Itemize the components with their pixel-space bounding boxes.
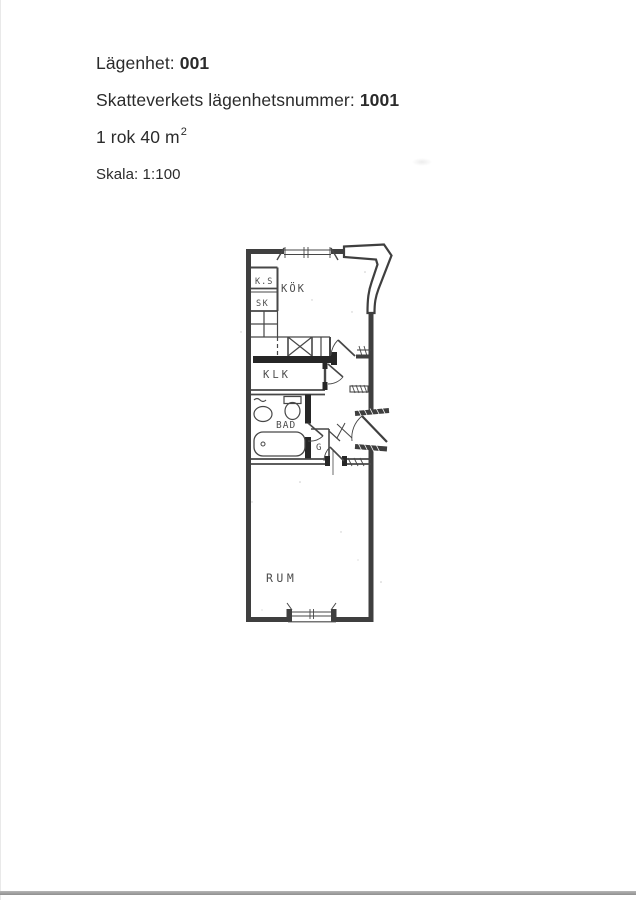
square-meter-superscript: 2 (181, 126, 187, 138)
room-size-text: 1 rok 40 m (96, 127, 180, 147)
entrance-door (337, 408, 389, 453)
tax-agency-number-value: 1001 (360, 90, 399, 110)
scale-line: Skala: 1:100 (96, 166, 181, 183)
kitchen-counter-left (251, 311, 278, 356)
floor-plan: K.S SK KÖK KLK BAD G RUM (236, 238, 400, 640)
room-label-rum: RUM (266, 571, 297, 585)
apartment-number-label: Lägenhet: (96, 53, 175, 73)
document-page: Lägenhet:001 Skatteverkets lägenhetsnumm… (0, 0, 636, 900)
window-top (277, 247, 338, 260)
window-bottom (287, 603, 337, 622)
kitchen-counter-stove (278, 337, 331, 356)
scan-bottom-edge (0, 891, 636, 895)
curved-wall-extension (344, 245, 392, 314)
tax-agency-number-label: Skatteverkets lägenhetsnummer: (96, 90, 355, 110)
klk-door (328, 364, 343, 384)
room-label-bad: BAD (276, 420, 296, 431)
scan-left-edge (0, 0, 1, 900)
room-label-ks: K.S (255, 277, 273, 287)
scale-text: Skala: 1:100 (96, 166, 181, 183)
sink (254, 399, 272, 422)
apartment-number-line: Lägenhet:001 (96, 53, 209, 74)
scan-smudge (412, 158, 432, 166)
bad-walls (305, 395, 311, 460)
room-label-g: G (316, 443, 321, 453)
room-label-kok: KÖK (281, 282, 306, 295)
room-label-klk: KLK (263, 369, 291, 381)
tax-agency-number-line: Skatteverkets lägenhetsnummer:1001 (96, 90, 399, 111)
room-label-sk: SK (256, 299, 269, 309)
toilet (284, 397, 301, 420)
room-size-line: 1 rok 40 m2 (96, 127, 187, 148)
apartment-number-value: 001 (180, 53, 210, 73)
bathtub (254, 432, 305, 456)
